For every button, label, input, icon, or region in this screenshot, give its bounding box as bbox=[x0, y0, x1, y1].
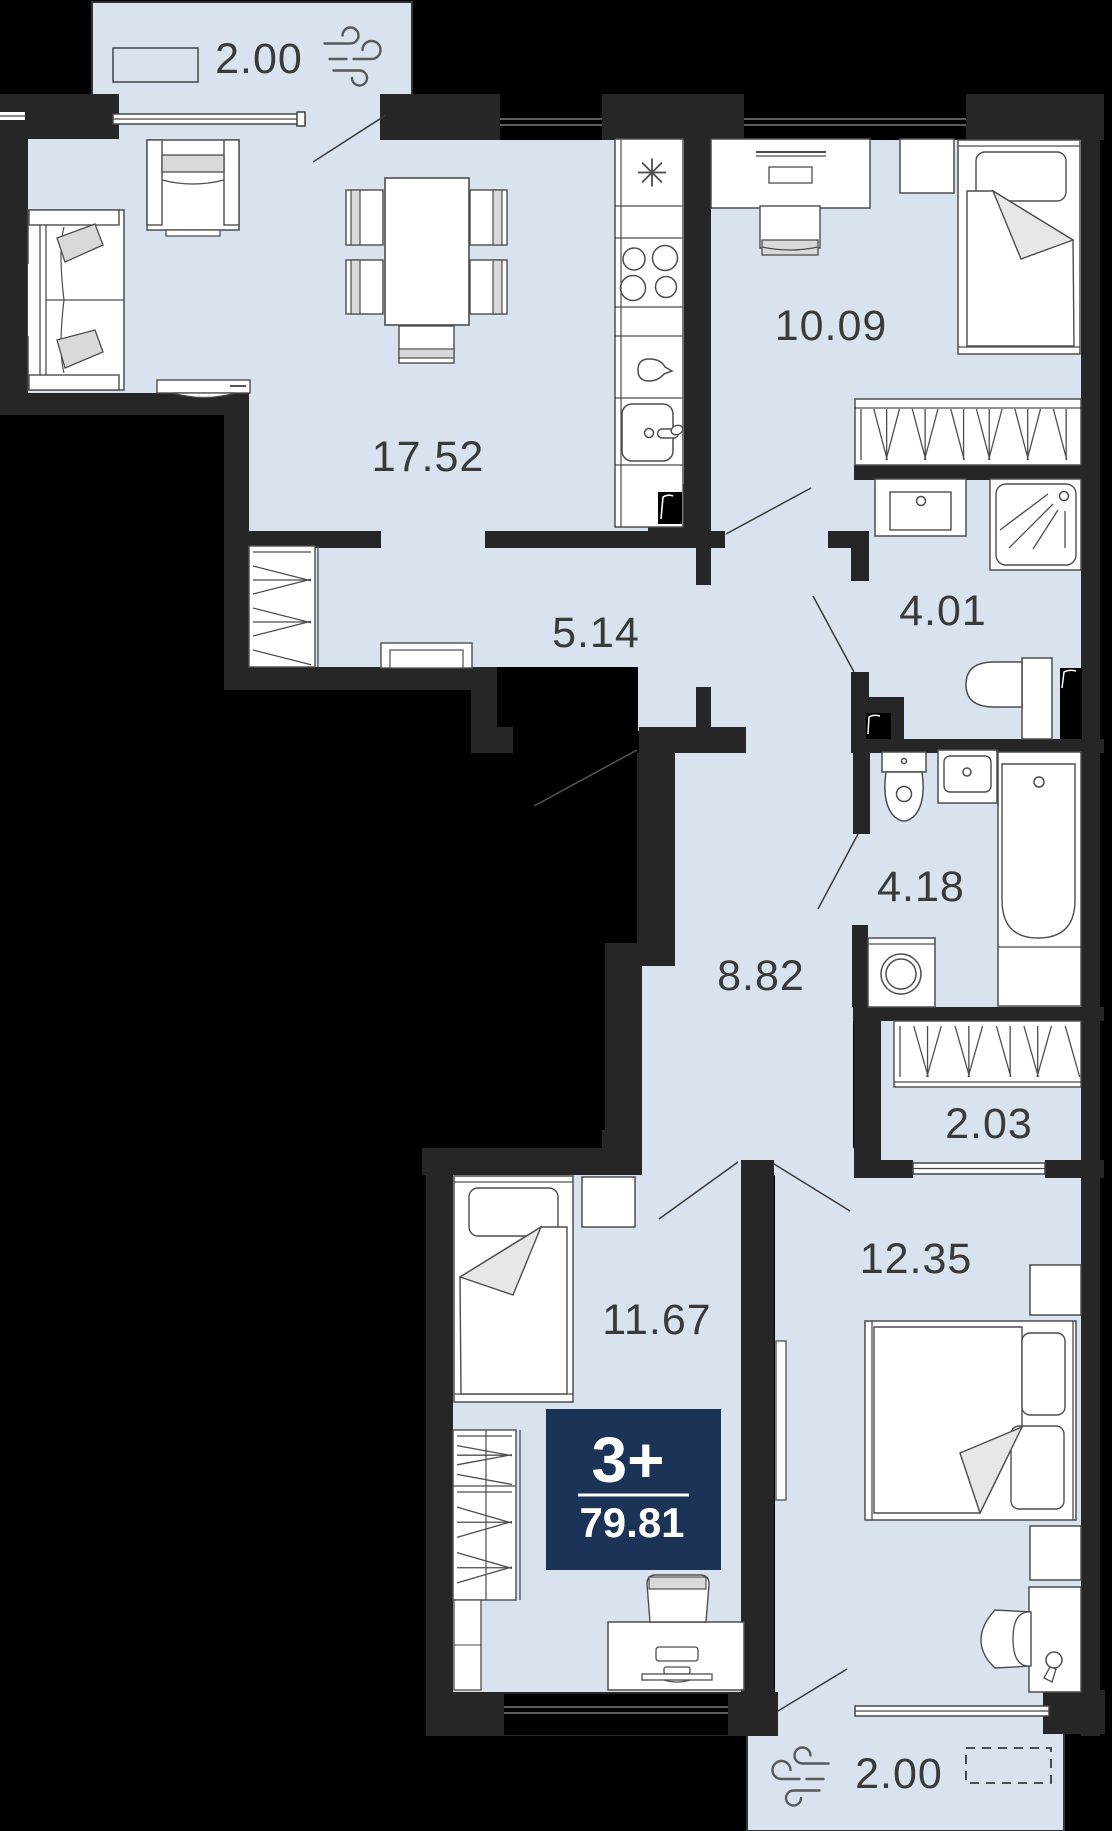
svg-text:5.14: 5.14 bbox=[552, 609, 640, 657]
svg-text:8.82: 8.82 bbox=[717, 952, 805, 1000]
svg-text:3+: 3+ bbox=[592, 1424, 665, 1496]
svg-text:2.03: 2.03 bbox=[945, 1100, 1033, 1148]
svg-text:10.09: 10.09 bbox=[775, 302, 888, 350]
svg-text:4.01: 4.01 bbox=[899, 587, 987, 635]
svg-text:17.52: 17.52 bbox=[372, 433, 485, 481]
svg-text:11.67: 11.67 bbox=[602, 1296, 711, 1344]
svg-text:2.00: 2.00 bbox=[215, 35, 303, 83]
svg-text:12.35: 12.35 bbox=[860, 1235, 973, 1283]
svg-text:79.81: 79.81 bbox=[579, 1499, 684, 1546]
svg-text:4.18: 4.18 bbox=[877, 863, 965, 911]
svg-text:2.00: 2.00 bbox=[855, 1750, 943, 1798]
